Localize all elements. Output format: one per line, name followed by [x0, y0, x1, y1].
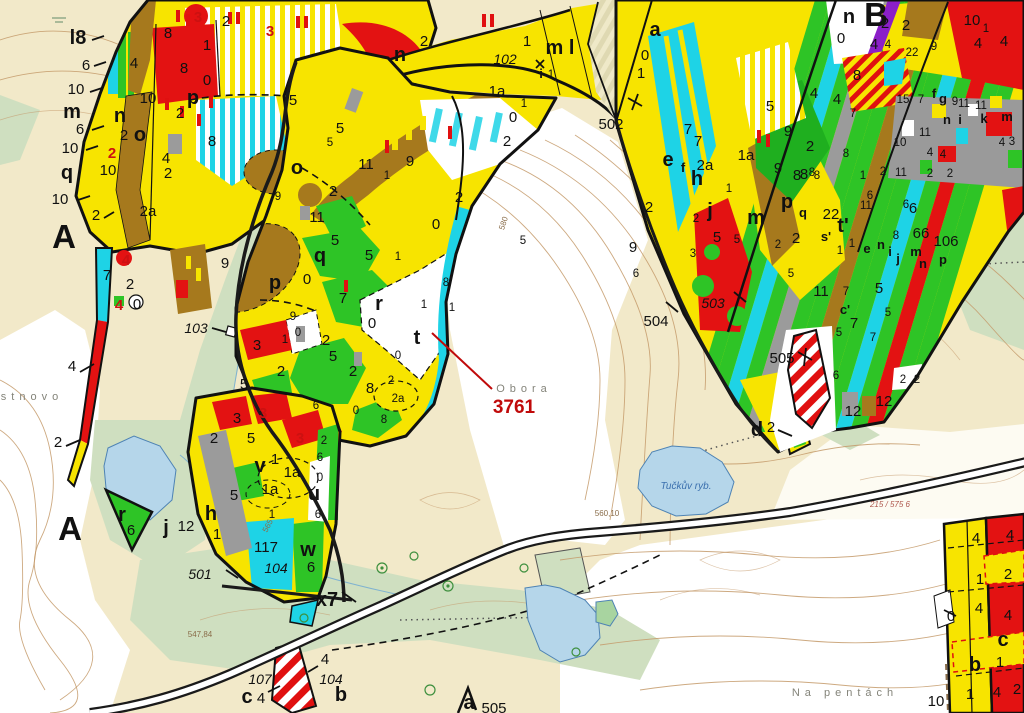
- map-label: 8: [180, 60, 188, 77]
- map-label: 11: [813, 283, 829, 300]
- map-label: s': [821, 229, 831, 244]
- map-label: 66: [913, 225, 930, 242]
- map-label: 2: [322, 332, 330, 349]
- map-label: 10: [52, 191, 69, 208]
- map-label: c: [241, 686, 252, 708]
- map-label: 10: [964, 12, 981, 29]
- map-label: 3: [194, 9, 202, 26]
- map-label: m l: [546, 37, 575, 59]
- map-label: i: [958, 112, 962, 127]
- map-label: w: [299, 539, 316, 561]
- map-label: 1: [282, 334, 288, 346]
- map-label: 8: [381, 414, 387, 426]
- map-label: 9: [221, 255, 229, 272]
- map-label: m: [747, 207, 765, 229]
- map-label: 5: [788, 268, 794, 280]
- map-label: 104: [264, 560, 288, 576]
- map-label: 9: [275, 191, 281, 203]
- map-label: 2: [1004, 566, 1012, 583]
- map-label: 2: [176, 105, 184, 122]
- map-label: n: [943, 112, 951, 127]
- map-label: 547,84: [188, 630, 213, 639]
- map-label: 8: [893, 230, 899, 242]
- map-label: p: [269, 272, 281, 294]
- map-label: 8: [366, 380, 374, 397]
- map-label: 2: [503, 133, 511, 150]
- map-label: a: [649, 19, 661, 41]
- map-label: n: [843, 6, 855, 28]
- map-label: 4: [993, 684, 1001, 701]
- map-label: 5: [365, 247, 373, 264]
- map-label: 8: [164, 25, 172, 42]
- map-label: 2: [210, 430, 218, 447]
- map-label: 4: [927, 147, 934, 159]
- map-label: 0: [509, 109, 517, 126]
- map-label: m: [1001, 109, 1013, 124]
- map-label: 5: [329, 348, 337, 365]
- map-label: 8: [800, 166, 808, 183]
- map-label: 1: [966, 686, 974, 703]
- map-label: 2: [164, 165, 172, 182]
- map-label: 7: [843, 286, 849, 298]
- map-label: 6: [307, 559, 315, 576]
- map-label: 6: [903, 199, 909, 211]
- map-label: o: [134, 124, 146, 146]
- map-label: 11: [919, 127, 931, 139]
- map-label: 2: [349, 363, 357, 380]
- map-label: 10: [68, 81, 85, 98]
- map-label: c': [840, 302, 850, 317]
- map-label: 8: [443, 277, 449, 289]
- map-label: c: [997, 629, 1008, 651]
- map-label: 4: [999, 137, 1006, 149]
- map-label: 15: [897, 94, 910, 106]
- map-label: 4: [1000, 33, 1008, 50]
- map-label: q: [799, 205, 807, 220]
- map-label: 4: [972, 530, 980, 547]
- map-label: 4: [321, 651, 329, 668]
- map-label: 11: [895, 167, 907, 179]
- map-label: 2: [329, 183, 337, 200]
- map-label: x7: [316, 589, 338, 611]
- map-label: 2: [222, 13, 230, 30]
- map-label: 2: [900, 374, 906, 386]
- map-label: 5: [713, 229, 721, 246]
- map-label: A: [52, 218, 76, 255]
- map-label: 1: [421, 299, 427, 311]
- map-label: 2: [775, 239, 781, 251]
- map-label: 2: [1013, 681, 1021, 698]
- map-label: 6: [633, 268, 639, 280]
- map-label: 1a: [738, 147, 755, 164]
- map-label: k: [980, 111, 988, 126]
- map-label: q: [314, 245, 326, 267]
- map-label: 2a: [140, 203, 157, 220]
- map-label: 1: [996, 654, 1004, 671]
- map-label: 102: [493, 51, 517, 67]
- map-label: a: [463, 692, 475, 713]
- map-label: 1: [976, 571, 984, 588]
- map-label: g: [939, 91, 947, 106]
- map-label: f: [681, 160, 686, 175]
- map-label: 12: [845, 403, 862, 420]
- map-label: 0: [395, 350, 401, 362]
- map-label: 11: [860, 200, 872, 212]
- map-label: 2: [455, 189, 463, 206]
- map-label: Na pentách: [792, 687, 898, 699]
- map-label: 1a: [284, 464, 301, 481]
- map-label: 0: [317, 472, 323, 484]
- map-label: 7: [850, 108, 856, 120]
- map-label: A: [58, 510, 82, 547]
- map-label: 4: [257, 690, 265, 707]
- map-label: 2: [902, 17, 910, 34]
- map-label: 3: [296, 430, 304, 447]
- map-label: h: [691, 168, 703, 190]
- map-label: t: [414, 327, 421, 349]
- map-label: 2: [388, 375, 394, 387]
- map-label: 1a: [489, 83, 506, 100]
- map-label: 8: [853, 67, 861, 84]
- map-label: 215 / 575 6: [869, 500, 911, 509]
- map-label: 0: [353, 405, 359, 417]
- map-label: 9: [774, 160, 782, 177]
- map-label: 4: [1004, 607, 1012, 624]
- map-label: stnovo: [1, 391, 63, 403]
- map-label: q: [61, 162, 73, 184]
- map-label: 22: [906, 47, 919, 59]
- map-label: 5: [240, 376, 248, 393]
- map-label: 2: [693, 213, 699, 225]
- map-label: 5: [885, 307, 891, 319]
- map-label: 10: [62, 140, 79, 157]
- map-label: d: [751, 419, 763, 441]
- map-label: h: [205, 503, 217, 525]
- map-label: 6: [76, 121, 84, 138]
- map-label: 12: [876, 393, 893, 410]
- map-label: 5: [247, 430, 255, 447]
- map-label: 2: [645, 199, 653, 216]
- map-label: 5: [836, 327, 842, 339]
- map-label: 2: [126, 276, 134, 293]
- map-label: 6: [833, 370, 839, 382]
- map-label: 117: [254, 539, 278, 556]
- map-label: 2: [881, 15, 889, 32]
- map-label: 6: [315, 509, 321, 521]
- forestry-map[interactable]: AABl8610m610q1023238148010p5n2o28210422a…: [0, 0, 1024, 713]
- map-label: 1: [523, 33, 531, 50]
- map-label: 2: [54, 434, 62, 451]
- map-label: 9: [406, 153, 414, 170]
- map-label: v: [254, 455, 266, 477]
- map-label: 0: [303, 271, 311, 288]
- map-label: 4: [975, 600, 983, 617]
- map-label: 5: [875, 280, 883, 297]
- map-viewport[interactable]: AABl8610m610q1023238148010p5n2o28210422a…: [0, 0, 1024, 713]
- map-label: 3: [253, 337, 261, 354]
- map-label: 3: [1009, 136, 1015, 148]
- map-label: 0: [837, 30, 845, 47]
- map-label: r: [375, 293, 383, 315]
- map-label: 5: [289, 92, 297, 109]
- map-label: 1: [548, 69, 554, 81]
- map-label: 504: [643, 313, 668, 330]
- map-label: 106: [933, 233, 958, 250]
- map-label: 1: [384, 170, 390, 182]
- map-label: 5: [734, 234, 740, 246]
- map-label: Tučkův ryb.: [661, 480, 712, 492]
- map-label: e: [863, 241, 870, 256]
- map-label: 10: [140, 90, 157, 107]
- map-label: n: [114, 105, 126, 127]
- map-label: 0: [947, 608, 955, 625]
- map-label: 1: [837, 245, 843, 257]
- map-label: 7: [103, 267, 111, 284]
- map-label: 6: [909, 200, 917, 217]
- map-label: 0: [133, 296, 141, 313]
- map-label: p: [187, 87, 199, 109]
- map-label: 10: [100, 162, 117, 179]
- map-label: 7: [850, 315, 858, 332]
- map-label: 1: [269, 509, 275, 521]
- map-label: 9: [629, 239, 637, 256]
- map-label: 1: [983, 23, 989, 35]
- map-label: 2: [806, 138, 814, 155]
- map-label: j: [162, 517, 169, 539]
- map-label: 3: [233, 410, 241, 427]
- map-label: 2: [108, 145, 116, 162]
- map-label: 1: [203, 37, 211, 54]
- map-label: 8: [814, 170, 820, 182]
- map-label: n: [877, 237, 885, 252]
- map-label: j: [895, 251, 900, 266]
- map-label: 2: [767, 419, 775, 436]
- map-label: b: [335, 684, 347, 706]
- map-label: 1: [849, 238, 855, 250]
- map-label: 2: [880, 166, 886, 178]
- map-label: 503: [701, 295, 725, 311]
- map-label: 11: [958, 98, 970, 110]
- map-label: m: [63, 101, 81, 123]
- map-label: e: [662, 149, 673, 171]
- map-label: i: [539, 66, 543, 81]
- map-label: 7: [870, 332, 876, 344]
- map-label: 502: [598, 116, 623, 133]
- map-label: 5: [327, 137, 333, 149]
- map-label: 5: [766, 98, 774, 115]
- map-label: p: [781, 191, 793, 213]
- map-label: 5: [336, 120, 344, 137]
- map-label: 4: [870, 36, 878, 53]
- map-label: 6: [82, 57, 90, 74]
- map-label: i: [888, 244, 892, 259]
- map-label: 9: [290, 311, 296, 323]
- map-label: 103: [184, 320, 208, 336]
- map-label: 1: [637, 65, 645, 82]
- map-label: n: [394, 44, 406, 66]
- map-label: p: [939, 252, 947, 267]
- map-label: t': [837, 215, 848, 237]
- map-label: 1a: [262, 481, 279, 498]
- map-label: 2: [92, 207, 100, 224]
- map-label: n: [919, 256, 927, 271]
- map-label: 4: [115, 297, 124, 314]
- map-label: Obora: [496, 383, 552, 395]
- map-label: 2: [914, 374, 920, 386]
- map-label: 4: [68, 358, 76, 375]
- map-label: f: [932, 86, 937, 101]
- map-label: 3: [259, 405, 267, 422]
- map-label: 9: [784, 123, 792, 140]
- map-label: 11: [309, 209, 325, 226]
- map-label: 560,10: [595, 509, 620, 518]
- map-label: 4: [833, 91, 841, 108]
- map-label: 9: [931, 41, 937, 53]
- map-label: 0: [203, 72, 211, 89]
- map-label: 5: [520, 235, 526, 247]
- map-label: 2: [792, 230, 800, 247]
- map-label: u: [308, 483, 320, 505]
- map-label: 4: [810, 85, 818, 102]
- map-label: 6: [313, 400, 319, 412]
- map-label: 4: [1006, 527, 1014, 544]
- map-label: 0: [368, 315, 376, 332]
- map-label: 3: [266, 23, 274, 40]
- map-label: 0: [432, 216, 440, 233]
- map-label: 505: [769, 350, 794, 367]
- map-label: b: [969, 654, 981, 676]
- map-label: 11: [358, 156, 374, 173]
- map-label: o: [291, 157, 303, 179]
- map-label: 10: [894, 137, 907, 149]
- map-label: 505: [481, 700, 506, 713]
- map-label: l8: [70, 27, 87, 49]
- map-label: 1: [726, 183, 732, 195]
- map-label: 5: [230, 487, 238, 504]
- map-label: 5: [331, 232, 339, 249]
- map-label: 4: [130, 55, 138, 72]
- map-label: 4: [940, 149, 947, 161]
- map-label: 8: [843, 148, 849, 160]
- map-label: 12: [178, 518, 195, 535]
- map-label: 7: [694, 133, 702, 150]
- map-label: 6: [127, 522, 135, 539]
- map-label: 8: [208, 133, 216, 150]
- map-label: 7: [684, 121, 692, 138]
- map-label: 2: [321, 435, 327, 447]
- map-label: 6: [317, 452, 323, 464]
- map-label: 2: [947, 168, 953, 180]
- map-label: 7: [339, 290, 347, 307]
- map-label: 1: [449, 302, 455, 314]
- map-label: 501: [188, 566, 211, 582]
- map-label: 1: [213, 526, 221, 543]
- map-label: 4: [974, 35, 982, 52]
- map-label: 1: [395, 251, 401, 263]
- map-label: 107: [248, 671, 273, 687]
- map-label: 3: [690, 248, 696, 260]
- map-label: 1: [271, 451, 279, 468]
- map-label: 10: [928, 693, 945, 710]
- map-label: 2: [927, 168, 933, 180]
- map-label: 1: [860, 170, 866, 182]
- map-label: 1: [521, 98, 527, 110]
- map-label: 3761: [493, 397, 536, 418]
- map-label: 0: [295, 327, 301, 339]
- map-label: 2: [277, 363, 285, 380]
- map-label: 2: [120, 127, 128, 144]
- map-label: 2: [420, 33, 428, 50]
- map-label: 2a: [392, 393, 405, 405]
- map-label: 4: [122, 252, 131, 269]
- map-label: 4: [885, 39, 892, 51]
- map-label: r: [118, 504, 126, 526]
- map-label: 0: [641, 47, 649, 64]
- map-label: j: [706, 200, 713, 222]
- map-label: 7: [918, 94, 924, 106]
